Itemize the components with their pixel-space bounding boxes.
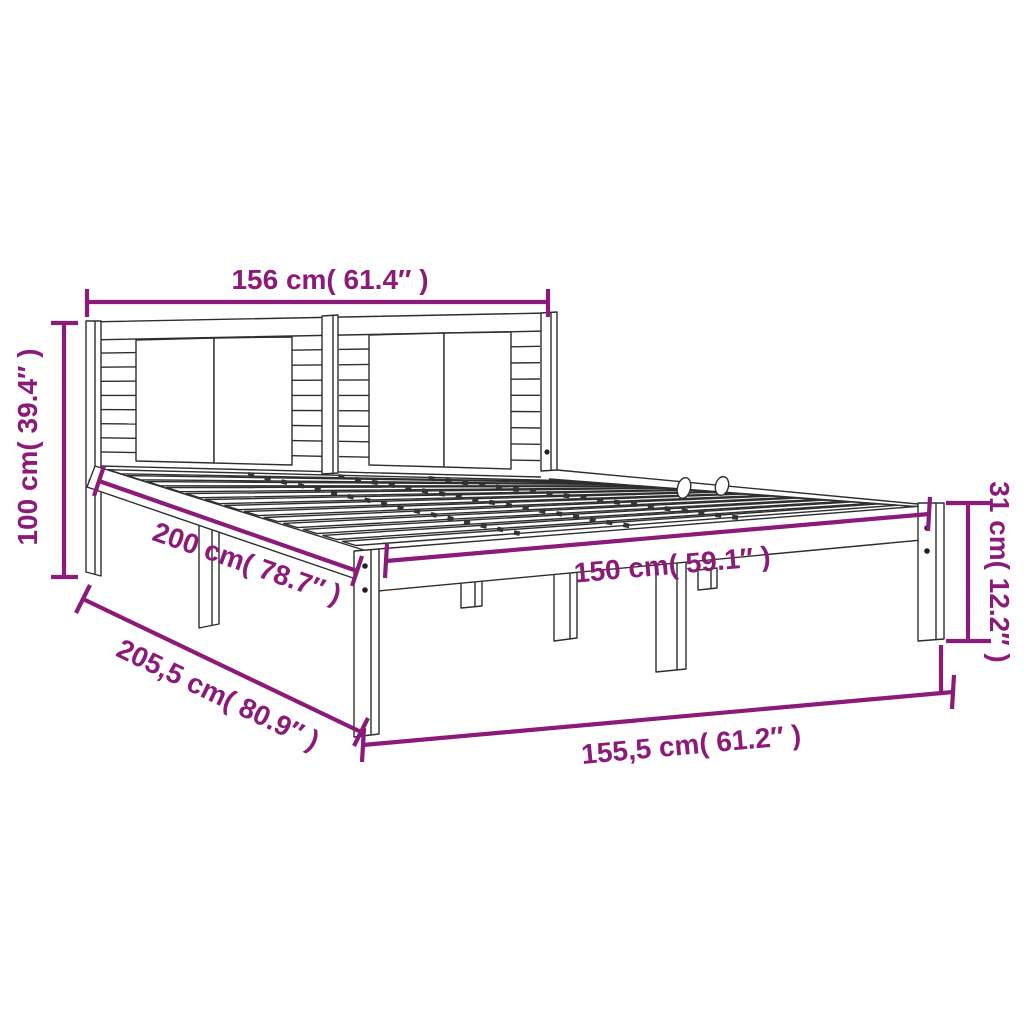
product-dimension-diagram: 156 cm( 61.4″ ) 100 cm( 39.4″ ) 200 cm( … (0, 0, 1024, 1024)
headboard-slat-line (339, 457, 369, 458)
label-headboard-height: 100 cm( 39.4″ ) (12, 348, 43, 545)
bed-leg-middle (554, 572, 577, 641)
label-headboard-width: 156 cm( 61.4″ ) (231, 264, 428, 295)
headboard-slat-line (292, 456, 322, 457)
headboard-slat-line (292, 441, 322, 442)
headboard-panel (214, 337, 292, 465)
headboard-slat-line (292, 350, 322, 351)
bed-leg-corner-right (918, 503, 944, 641)
dim-headboard-height (51, 323, 78, 577)
bed-frame-drawing: 156 cm( 61.4″ ) 100 cm( 39.4″ ) 200 cm( … (0, 0, 1024, 1024)
label-frame-height: 31 cm( 12.2″ ) (984, 481, 1015, 663)
headboard-panel (136, 338, 214, 463)
headboard-slat-line (101, 353, 136, 354)
dim-total-length (76, 585, 368, 746)
headboard-slat-line (511, 346, 540, 347)
label-total-width: 155,5 cm( 61.2″ ) (580, 719, 802, 770)
headboard-slat-line (101, 438, 136, 439)
headboard-right-post (541, 312, 557, 471)
headboard-slat-line (511, 460, 540, 461)
headboard-slat-line (339, 441, 369, 442)
headboard-left-leg (86, 321, 101, 576)
headboard-panel (369, 333, 444, 467)
headboard-slat-line (101, 452, 136, 453)
headboard-center-post (322, 315, 338, 474)
bed-leg-corner-left (354, 549, 379, 737)
label-total-length: 205,5 cm( 80.9″ ) (112, 633, 324, 756)
headboard-panel (444, 332, 511, 469)
bed-leg-rear (461, 580, 482, 608)
screw (924, 548, 930, 554)
screw (362, 563, 368, 569)
screw (544, 449, 549, 454)
screw (362, 587, 368, 593)
